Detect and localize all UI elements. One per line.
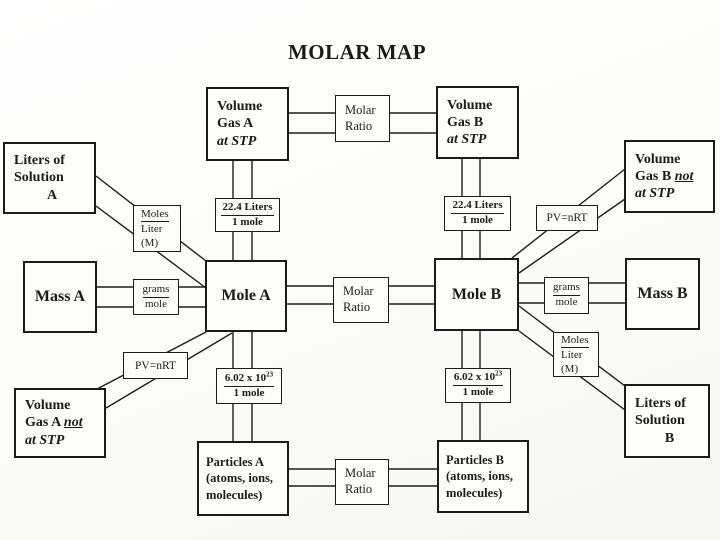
- node-mole-a: Mole A: [205, 260, 287, 332]
- connector-grams-per-mole-a: grams mole: [133, 279, 179, 315]
- node-volume-gas-b-stp: Volume Gas B at STP: [436, 86, 519, 159]
- connector-grams-per-mole-b: grams mole: [544, 277, 589, 314]
- connector-ideal-gas-b: PV=nRT: [536, 205, 598, 231]
- node-mass-a: Mass A: [23, 261, 97, 333]
- node-volume-gas-b-not-stp: Volume Gas B not at STP: [624, 140, 715, 213]
- page-title: MOLAR MAP: [0, 40, 714, 65]
- connector-avogadro-b: 6.02 x 1023 1 mole: [445, 368, 511, 403]
- connector-molar-ratio-middle: Molar Ratio: [333, 277, 389, 323]
- connector-avogadro-a: 6.02 x 1023 1 mole: [216, 368, 282, 404]
- connector-liters-per-mole-a: 22.4 Liters 1 mole: [215, 198, 280, 232]
- node-volume-gas-a-stp: Volume Gas A at STP: [206, 87, 289, 161]
- node-mass-b: Mass B: [625, 258, 700, 330]
- connector-molarity-b: Moles Liter (M): [553, 332, 599, 377]
- node-mole-b: Mole B: [434, 258, 519, 331]
- node-liters-solution-b: Liters of Solution B: [624, 384, 710, 458]
- molar-map-diagram: MOLAR MAP Volume Gas A at STP Molar Rati…: [0, 0, 720, 540]
- connector-ideal-gas-a: PV=nRT: [123, 352, 188, 379]
- connector-molar-ratio-top: Molar Ratio: [335, 95, 390, 142]
- connector-liters-per-mole-b: 22.4 Liters 1 mole: [444, 196, 511, 231]
- connector-molar-ratio-bottom: Molar Ratio: [335, 459, 389, 505]
- node-volume-gas-a-not-stp: Volume Gas A not at STP: [14, 388, 106, 458]
- connector-molarity-a: Moles Liter (M): [133, 205, 181, 252]
- node-particles-b: Particles B (atoms, ions, molecules): [437, 440, 529, 513]
- node-liters-solution-a: Liters of Solution A: [3, 142, 96, 214]
- node-particles-a: Particles A (atoms, ions, molecules): [197, 441, 289, 516]
